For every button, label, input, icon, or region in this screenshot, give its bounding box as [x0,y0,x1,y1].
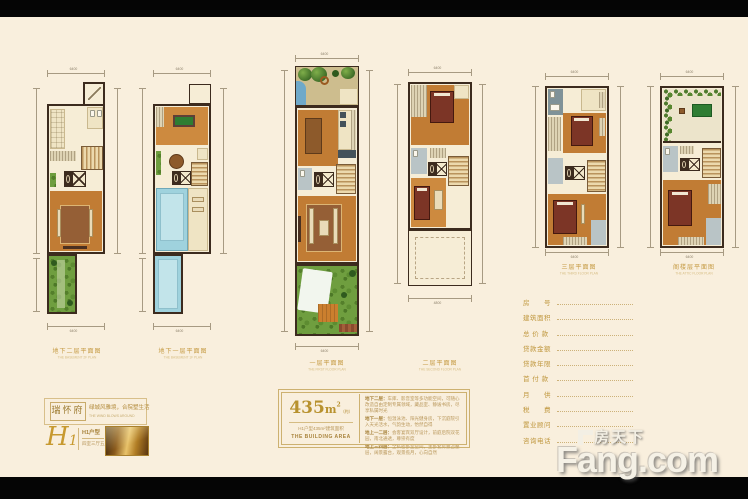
form-label: 咨询电话 [523,435,553,445]
dimension-number: 6400 [70,66,78,70]
garden-patio [340,89,357,104]
wardrobe [678,237,704,245]
bathroom [87,107,103,129]
divider [78,428,79,450]
script-1: 1 [69,433,78,449]
lounge-chair [192,197,204,202]
front-garden [295,66,359,106]
rule [82,438,104,439]
elevator-shaft [680,158,688,171]
tv-cabinet [63,246,87,249]
top-letterbox [0,0,748,17]
form-row: 房 号 [523,292,643,307]
terrace-table [679,108,685,114]
closet [430,148,446,158]
dimension-number: 4800 [434,300,442,304]
dimension-line [142,258,143,312]
indoor-pool [156,188,188,251]
toilet [550,91,555,98]
light-well [189,84,211,104]
dimension-line [660,252,724,253]
plan-label: 地下二层平面图 [33,346,121,355]
closet [680,146,694,154]
form-row: 贷款年限 [523,353,643,368]
tree [298,68,312,81]
form-label: 税 费 [523,404,553,414]
watermark-en: Fang.com [556,439,718,481]
stairs [336,164,356,194]
brand-tagline-en: THE WIND BLOWS AROUND [89,413,135,417]
dimension-line [535,86,536,248]
bathroom2 [706,218,721,245]
floorplan-third-floor: 6400 6400 三层平面图 THE THIRD FLOOR PLAN [533,68,625,284]
elevator-shaft [314,172,322,187]
sink [97,110,102,117]
area-number: 435m2（约） [283,398,359,418]
stairs [81,146,103,170]
planter [156,151,161,175]
lounge-chair [192,207,204,212]
bed [668,190,692,226]
dimension-number: 6400 [321,348,329,352]
elevator-shaft [172,171,180,185]
elevator-shaft [428,162,436,176]
plan-label-en: THE BASEMENT 1F PLAN [148,356,218,360]
plan-label: 三层平面图 [533,262,625,271]
stairs [702,148,721,178]
dimension-line [650,86,651,248]
tree [341,67,355,79]
dimension-line [47,73,105,74]
dimension-line [408,298,472,299]
garden-path [57,260,65,308]
elevator [436,162,447,176]
elevator [573,166,585,180]
plan-label: 一层平面图 [281,358,373,367]
shrub [67,300,73,306]
desk [599,92,605,108]
dimension-line [153,326,211,327]
dimension-line [36,88,37,254]
bed [430,91,454,123]
building-photo [105,426,149,456]
bathroom2 [548,158,563,184]
elevator [322,172,334,187]
detail-label: 地下二层： [365,396,388,401]
bed [414,186,430,220]
brand-block: 瑞怀府 绿城风雅境，合院墅生活 THE WIND BLOWS AROUND H1… [44,398,147,460]
wardrobe [563,237,587,245]
detail-row: 地上三四层：全私密卧室空间，主卧套房独占整层，阔景露台，观景揽月，心向自然 [365,444,463,456]
balcony [454,85,469,99]
form-row: 月 供 [523,384,643,399]
pool-deck [188,188,208,251]
shrub [51,260,57,266]
study [581,89,606,111]
shrub [341,292,347,298]
form-label: 月 供 [523,389,553,399]
kitchen-counter [351,110,356,150]
unit-rooms: 四室三厅五卫 [82,441,104,447]
dimension-line [47,326,105,327]
detail-label: 地上一二层： [365,430,392,435]
garden-ornament [320,76,329,85]
sales-form: 房 号 建筑面积 总 价 款 贷款金额 贷款年限 首 付 款 月 供 税 费 置… [523,292,643,445]
appliance [340,121,346,127]
dimension-number: 6400 [176,66,184,70]
form-row: 贷款金额 [523,338,643,353]
area-sub-en: THE BUILDING AREA [283,434,359,440]
dimension-line [153,73,211,74]
dimension-line [735,86,736,248]
floorplan-first-floor: 6400 [281,46,373,378]
fill-in-line [557,296,633,305]
pool-water [158,259,178,309]
dimension-number: 6400 [70,328,78,332]
unit-script-letter: H1 [46,424,78,450]
coffee-table [319,220,329,236]
elevator-shaft [64,171,72,187]
area-box: 435m2（约） H1户型435m²建筑面积 THE BUILDING AREA… [278,389,470,448]
bathroom [197,148,208,160]
rear-garden [295,264,359,336]
vine-planting [663,89,672,141]
elevator [72,171,86,187]
pool-water [160,193,184,241]
vine-planting [663,89,721,96]
interior-wall [663,141,721,143]
form-row: 建筑面积 [523,307,643,322]
area-sup: 2 [336,402,340,409]
hedge [339,324,357,332]
plan-label: 阁楼层平面图 [648,262,740,271]
dimension-number: 6400 [434,65,442,69]
area-sub-cn: H1户型435m²建筑面积 [283,426,359,432]
dimension-line [295,58,359,59]
dimension-line [482,84,483,284]
double-height-void [408,230,472,286]
elevator [688,158,700,171]
plan-label-en: THE ATTIC FLOOR PLAN [657,272,731,276]
tatami-room [50,109,65,149]
toilet [300,170,305,177]
tv-wall [298,216,301,242]
area-approx: （约） [341,409,353,414]
shower [550,104,560,111]
bed [553,200,577,234]
area-value: 435 [289,398,325,418]
form-row: 首 付 款 [523,368,643,383]
wardrobe [548,117,561,151]
master-bathroom [591,220,606,245]
plan-label-en: THE BASEMENT 2F PLAN [42,356,112,360]
tea-table [169,154,184,169]
wardrobe [411,85,427,117]
dimension-line [660,76,724,77]
dimension-number: 6400 [321,51,329,55]
form-label: 置业顾问 [523,419,553,429]
floorplan-second-floor: 6400 4800 二层平面图 THE SECOND FLOOR PLAN [394,58,486,378]
pool-extension [153,254,183,314]
plan-label-en: THE FIRST FLOOR PLAN [290,368,364,372]
wood-deck [318,304,338,322]
fill-in-line [557,342,633,351]
elevator-shaft [565,166,573,180]
dimension-number: 6400 [686,69,694,73]
shrub [349,270,356,277]
fill-in-line [557,357,633,366]
dimension-line [142,88,143,254]
dresser [434,190,443,210]
detail-label: 地下一层： [365,416,388,421]
detail-row: 地上一二层：会客宴宾双厅设计，前庭后院双花园，南北通透，尊崇有度 [365,430,463,442]
stairs [587,160,606,192]
plan-label-en: THE SECOND FLOOR PLAN [403,368,477,372]
project-name: 瑞怀府 [50,402,86,421]
brand-tagline: 绿城风雅境，合院墅生活 [89,403,150,411]
script-h: H [46,422,69,452]
sofa [57,209,61,237]
dimension-line [620,86,621,248]
fill-in-line [557,388,633,397]
bed [571,116,593,146]
brand-banner: 瑞怀府 绿城风雅境，合院墅生活 THE WIND BLOWS AROUND [44,398,147,425]
dimension-number: 6400 [686,254,694,258]
area-details: 地下二层：车库、影音室等多功能空间，可随心改造自由定制专属领域，藏品室、静谧书房… [365,396,463,458]
void-outline [415,237,465,279]
form-label: 贷款金额 [523,343,553,353]
stairs [448,156,469,186]
form-label: 贷款年限 [523,358,553,368]
bathroom [298,168,312,190]
plan-label: 二层平面图 [394,358,486,367]
detail-row: 地下二层：车库、影音室等多功能空间，可随心改造自由定制专属领域，藏品室、静谧书房… [365,396,463,414]
dresser [599,118,605,136]
stairs [191,162,208,186]
fill-in-line [557,311,633,320]
dimension-line [284,70,285,332]
floorplan-attic: 6400 6400 阁楼层平面图 THE ATTIC FLOOR PLAN [648,68,740,284]
detail-label: 地上三四层： [365,444,392,449]
island-counter [338,150,356,158]
form-label: 建筑面积 [523,312,553,322]
sofa [333,208,338,244]
bathroom [663,146,678,172]
dimension-line [397,84,398,284]
dining-table [305,118,322,154]
rule [289,422,353,423]
dimension-line [36,258,37,312]
fill-in-line [557,403,633,412]
floorplan-basement-2: 6400 6400 地下二层平面图 THE BASEMEN [33,58,121,364]
dimension-number: 6400 [571,254,579,258]
fill-in-line [557,372,633,381]
fill-in-line [557,327,633,336]
dimension-line [545,252,609,253]
yoga-mat [692,104,712,117]
area-left-cell: 435m2（约） H1户型435m²建筑面积 THE BUILDING AREA [283,394,360,443]
toilet [413,150,418,157]
stair-arrow [88,87,101,100]
toilet [90,110,95,117]
elevator [180,171,191,185]
floorplan-poster: 6400 6400 地下二层平面图 THE BASEMEN [0,0,748,499]
plan-label: 地下一层平面图 [139,346,227,355]
dimension-line [545,76,609,77]
bathroom [411,148,427,174]
dimension-number: 6400 [176,328,184,332]
bathroom [548,89,563,115]
form-row: 税 费 [523,399,643,414]
billiard-table [173,115,195,127]
form-label: 总 价 款 [523,328,553,338]
dimension-line [295,346,359,347]
bench [581,204,585,224]
floorplan-basement-1: 6400 6400 地下一层平面图 THE BASEMENT 1F PLAN [139,58,227,364]
storage-closet [50,151,76,161]
fang-watermark: 房天下 Fang.com [556,426,748,498]
planter [50,173,56,187]
dimension-line [408,72,472,73]
form-label: 房 号 [523,297,553,307]
unit-code: H1户型 [82,428,104,436]
appliance [340,112,346,118]
sunken-courtyard [47,254,77,314]
area-unit: m [325,403,337,416]
entry-stair-bay [83,82,105,106]
pond [296,81,306,105]
form-row: 总 价 款 [523,323,643,338]
desk [708,184,721,204]
plan-label-en: THE THIRD FLOOR PLAN [542,272,616,276]
shrub [332,70,339,77]
toilet [665,148,670,155]
rug [60,205,90,244]
shelf [156,107,164,127]
detail-row: 地下一层：恒温泳池、阳光健身房，下沉庭院引入天光活水，气韵生动，怡然自得 [365,416,463,428]
sofa [89,209,93,237]
dimension-line [223,88,224,254]
dimension-number: 6400 [571,69,579,73]
unit-info: H1户型 四室三厅五卫 [82,428,104,447]
dimension-line [369,70,370,332]
dimension-line [117,88,118,254]
roof-terrace [663,89,721,141]
form-label: 首 付 款 [523,373,553,383]
sofa [309,208,314,244]
